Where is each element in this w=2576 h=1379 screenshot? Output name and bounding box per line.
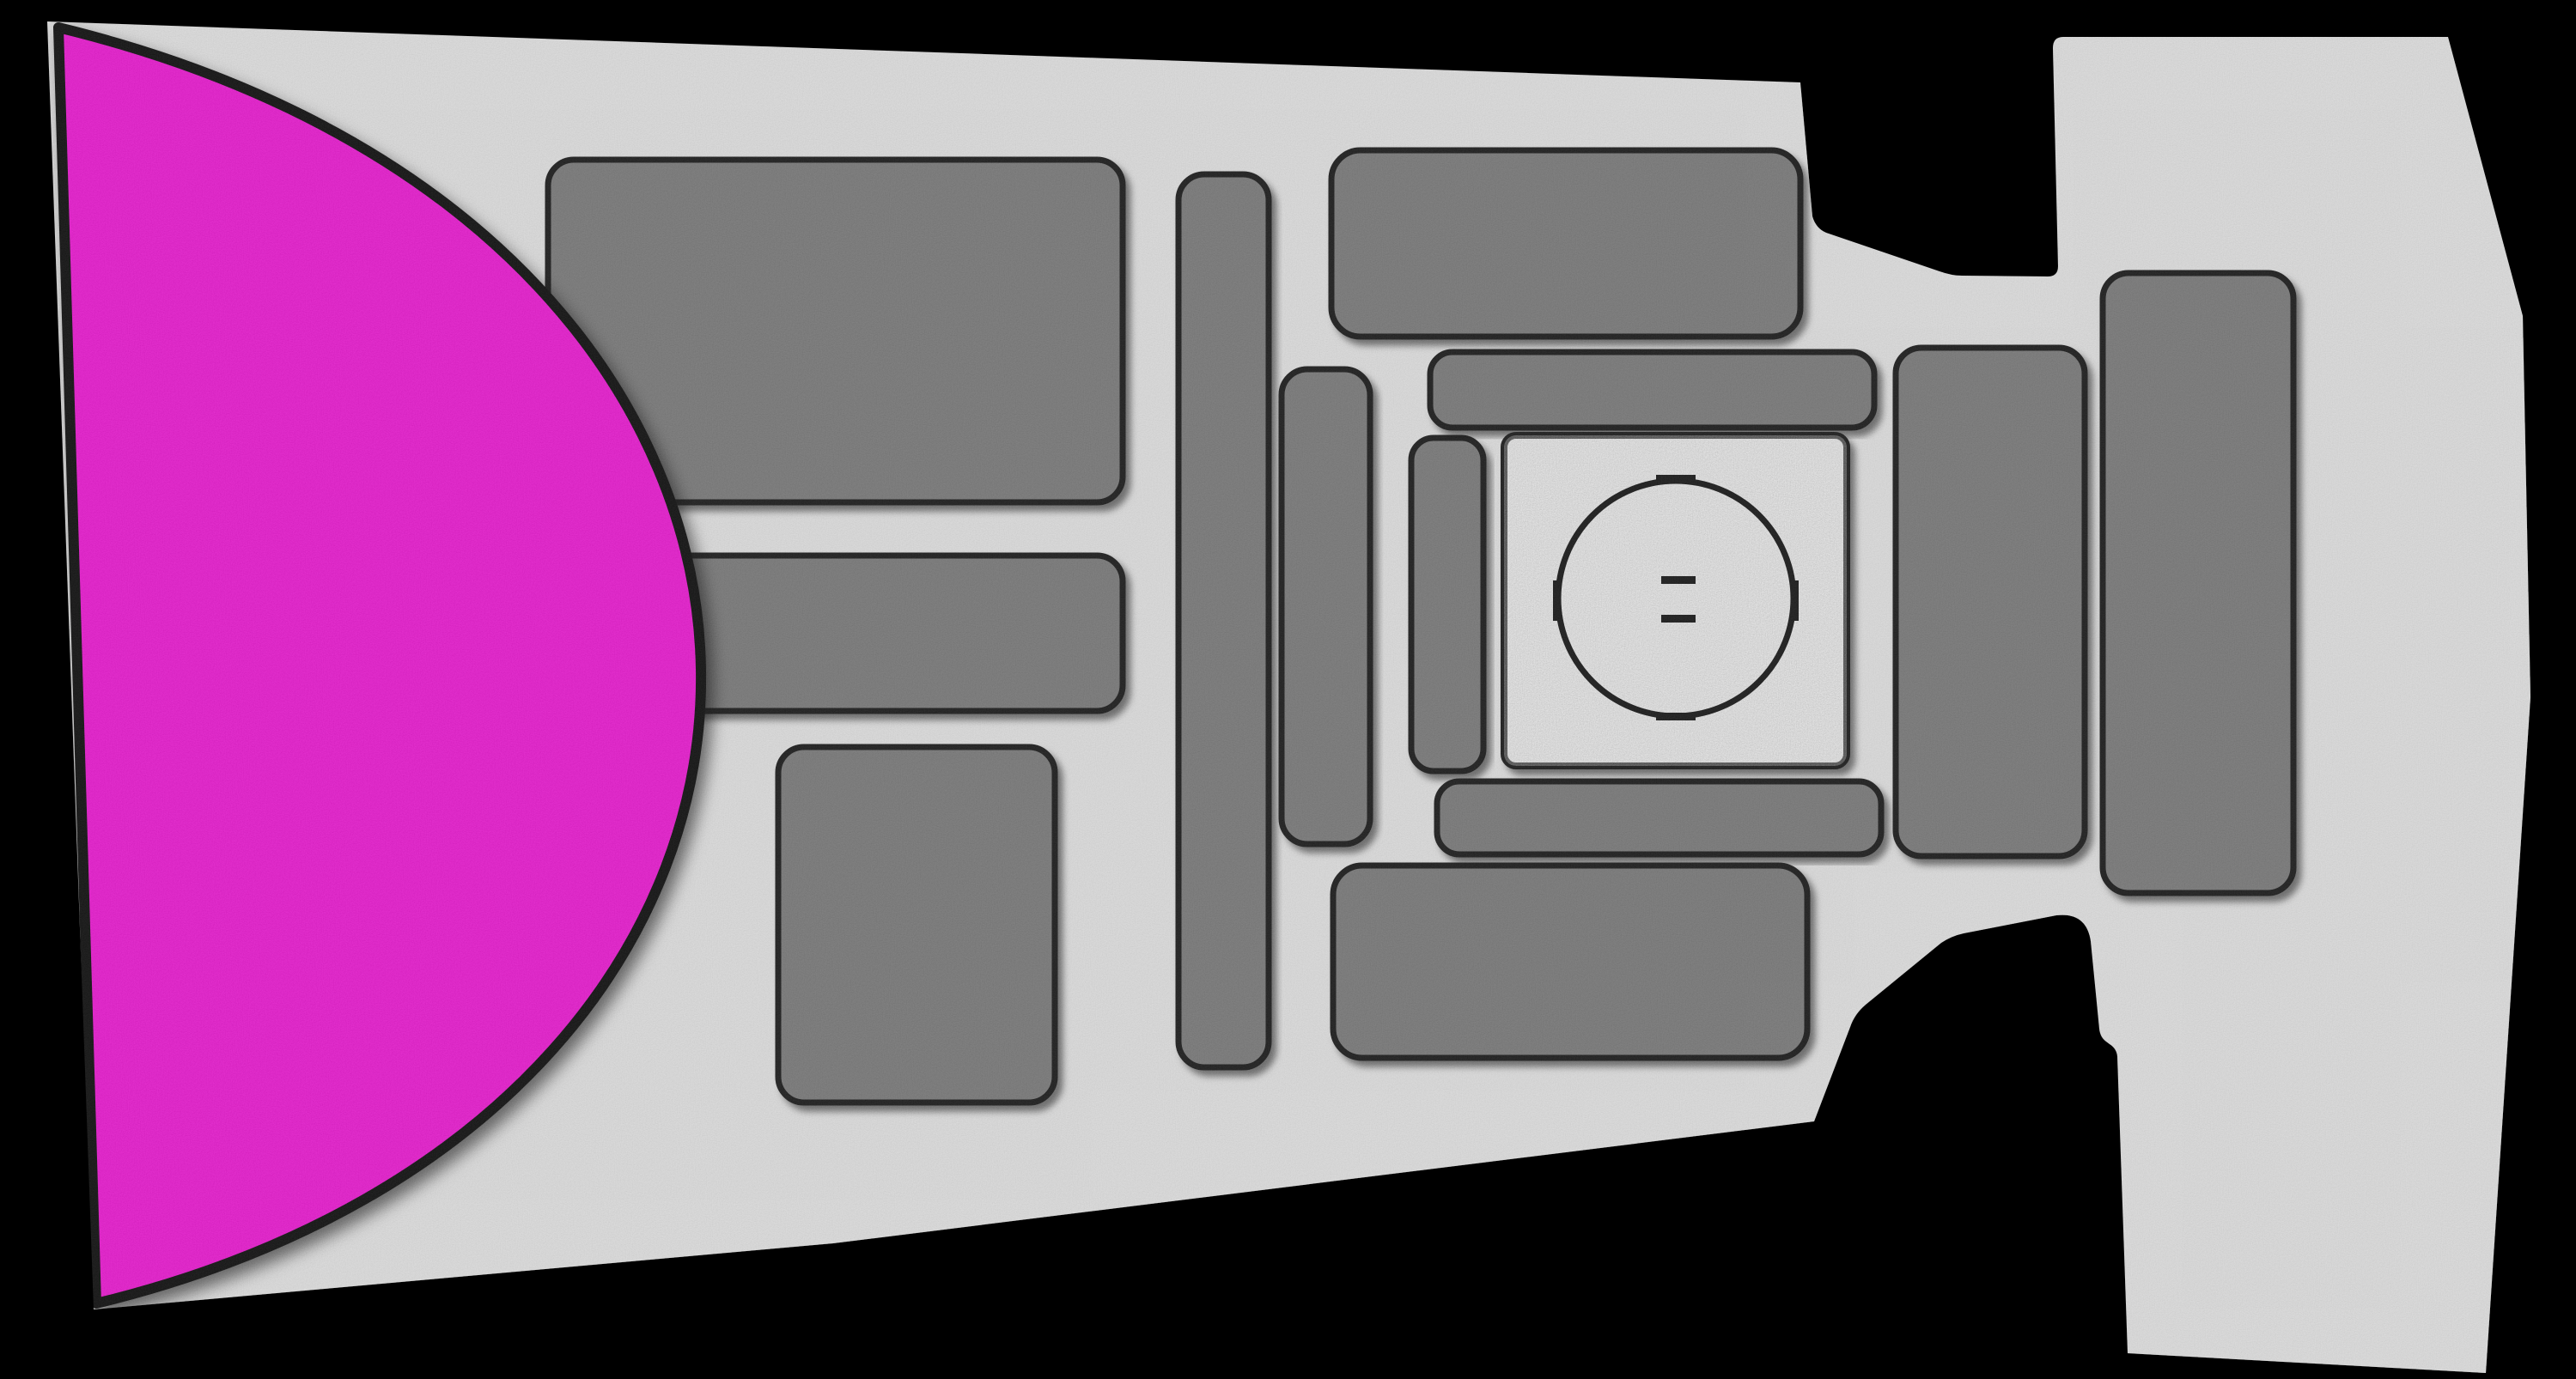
film-grain-overlay	[0, 0, 2576, 1379]
ship-deck-plan-diagram	[0, 0, 2576, 1379]
deck-plan-svg	[0, 0, 2576, 1379]
